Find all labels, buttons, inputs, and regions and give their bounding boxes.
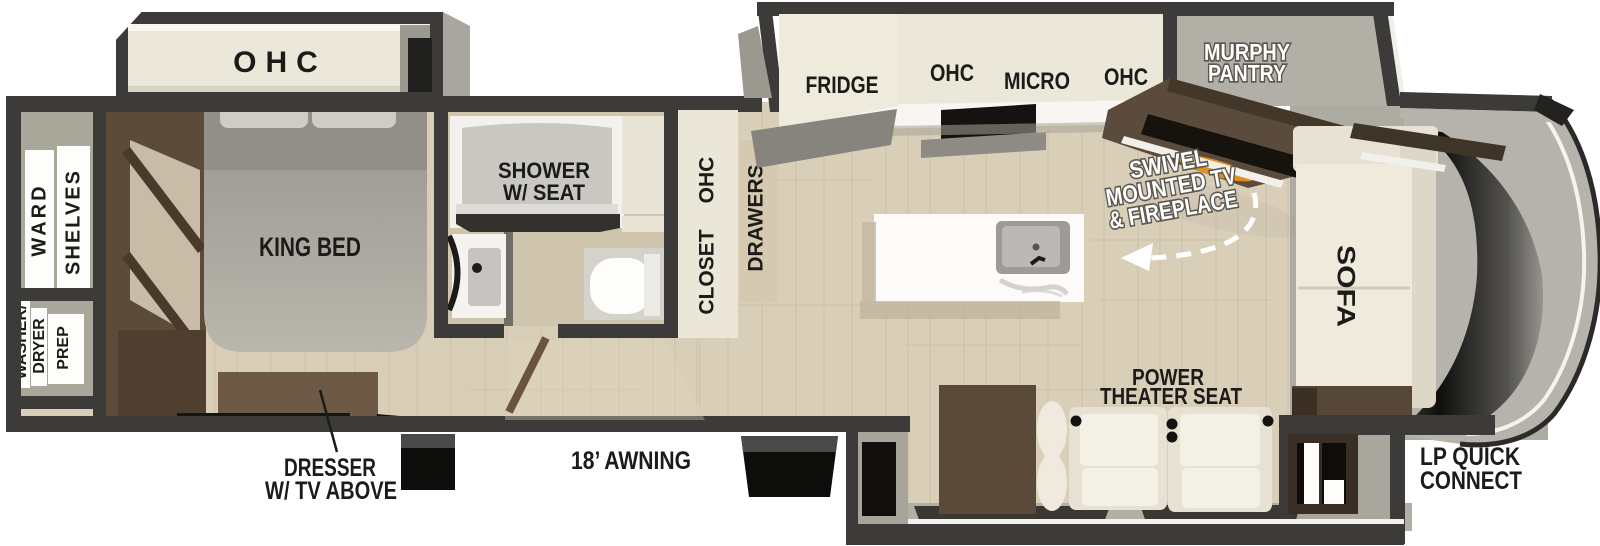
svg-text:THEATER SEAT: THEATER SEAT bbox=[1100, 383, 1242, 409]
svg-text:PREP: PREP bbox=[55, 326, 72, 370]
svg-text:18’ AWNING: 18’ AWNING bbox=[571, 447, 691, 475]
svg-text:PANTRY: PANTRY bbox=[1208, 60, 1286, 86]
svg-text:KING BED: KING BED bbox=[259, 232, 361, 262]
svg-text:CONNECT: CONNECT bbox=[1420, 467, 1522, 495]
svg-text:W/ SEAT: W/ SEAT bbox=[503, 180, 586, 205]
svg-text:WARD: WARD bbox=[28, 183, 50, 256]
svg-text:DRYER: DRYER bbox=[31, 318, 48, 374]
svg-text:FRIDGE: FRIDGE bbox=[806, 72, 879, 99]
svg-text:SHELVES: SHELVES bbox=[62, 169, 84, 275]
svg-text:OHC: OHC bbox=[696, 157, 719, 204]
svg-text:OHC: OHC bbox=[930, 60, 974, 87]
svg-text:OHC: OHC bbox=[233, 46, 327, 79]
svg-text:DRAWERS: DRAWERS bbox=[745, 164, 768, 271]
svg-text:SOFA: SOFA bbox=[1331, 245, 1359, 327]
svg-text:OHC: OHC bbox=[1104, 64, 1148, 91]
svg-text:W/ TV ABOVE: W/ TV ABOVE bbox=[265, 477, 397, 505]
svg-text:MICRO: MICRO bbox=[1004, 68, 1070, 95]
svg-text:CLOSET: CLOSET bbox=[696, 229, 719, 314]
